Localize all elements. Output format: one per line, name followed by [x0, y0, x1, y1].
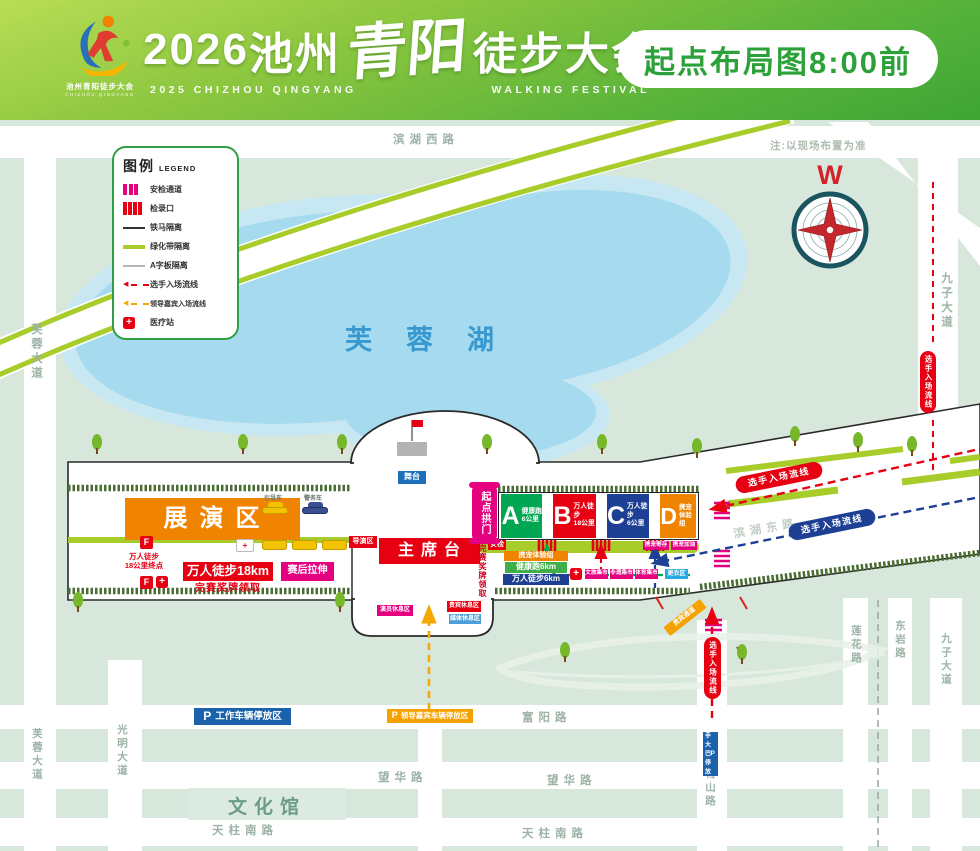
- athlete-flow-icon: ◀: [123, 281, 150, 288]
- shuttle-bus-icon-3: [322, 540, 347, 550]
- shuttle-bus-icon-2: [292, 540, 317, 550]
- compass-icon: [794, 194, 866, 266]
- logo-subtext: CHIZHOU QINGYANG: [50, 92, 150, 97]
- lake-label: 芙蓉湖: [345, 318, 528, 357]
- road-jiuzi-bottom: 九子大道: [939, 633, 954, 687]
- header-banner: 池州青阳徒步大会 CHIZHOU QINGYANG 2026 池州 青阳 徒步大…: [0, 0, 980, 120]
- runner-logo-icon: [58, 10, 142, 76]
- shuttle-bus-icon-1: [262, 540, 287, 550]
- medal-vertical-label: 完赛奖牌领取: [477, 544, 488, 608]
- road-tianzhu-right: 天柱南路: [522, 825, 588, 841]
- pet-deposit-box: 携宠寄存: [643, 541, 669, 550]
- medical-station-1: [570, 568, 582, 580]
- legend-title-en: LEGEND: [159, 164, 196, 173]
- road-tianzhu-left: 天柱南路: [212, 822, 278, 838]
- start-arch: 起点拱门: [472, 484, 497, 542]
- culture-hall-label: 文化馆: [188, 792, 346, 819]
- parking-p-icon: P: [710, 751, 717, 758]
- director-area-box: 导演区: [349, 536, 377, 548]
- start-zones: A 健康跑6公里 B 万人徒步18公里 C 万人徒步6公里 D 携宠体验组: [498, 492, 699, 540]
- parking-vip-box: P 领导嘉宾车辆停放区: [387, 709, 473, 723]
- title-year: 2026: [143, 25, 249, 75]
- map-area: 图例 LEGEND 安检通道 检录口 铁马隔离 绿化带隔离 A字板隔离: [0, 120, 980, 851]
- car-police-label: 警务车: [296, 493, 330, 502]
- pet-group-box: 携宠体验组: [504, 551, 568, 561]
- stage-platform: [397, 442, 427, 456]
- legend-item-greenbelt: 绿化带隔离: [123, 237, 229, 256]
- title-sub-left: 2025 CHIZHOU QINGYANG: [150, 84, 357, 96]
- legend-item-medical: 医疗站: [123, 313, 229, 332]
- legend-item-barrier: 铁马隔离: [123, 218, 229, 237]
- legend-item-checkin: 检录口: [123, 199, 229, 218]
- title-sub-right: WALKING FESTIVAL: [492, 84, 650, 96]
- market-2-box: 非遗集市: [610, 569, 633, 579]
- road-wanghua-right: 望华路: [547, 772, 597, 788]
- road-furong-top: 芙蓉大道: [28, 323, 44, 381]
- health-run-box: 健康跑6km: [505, 562, 567, 573]
- legend-item-athlete-flow: ◀ 选手入场流线: [123, 275, 229, 294]
- athlete-flow-pill-jishan: 选手入场流线: [704, 637, 721, 699]
- parking-work-box: P 工作车辆停放区: [194, 708, 291, 725]
- road-jiuzi-top: 九子大道: [938, 272, 954, 330]
- layout-badge: 起点布局图8:00前: [618, 30, 938, 88]
- event-title: 2026 池州 青阳 徒步大会 2025 CHIZHOU QINGYANG WA…: [150, 18, 650, 96]
- car-lead-label: 引导车: [256, 493, 290, 502]
- road-binhu-west: 滨湖西路: [393, 131, 459, 147]
- market-1-box: 文旅集市: [585, 569, 608, 579]
- legend-item-security: 安检通道: [123, 180, 229, 199]
- police-car-icon: [302, 502, 328, 514]
- road-furong-bottom: 芙蓉大道: [30, 728, 45, 782]
- zone-c: C 万人徒步6公里: [607, 494, 649, 538]
- walk6-box: 万人徒步6km: [503, 574, 569, 585]
- walk18-box: 万人徒步18km: [183, 562, 273, 581]
- parking-p-icon: P: [203, 710, 211, 723]
- road-wanghua-left: 望华路: [378, 769, 428, 785]
- event-logo: 池州青阳徒步大会 CHIZHOU QINGYANG: [50, 10, 150, 97]
- lead-car-icon: [262, 502, 288, 514]
- stretch-box: 赛后拉伸: [281, 562, 334, 581]
- vip-flow-icon: ◀: [123, 300, 150, 307]
- security-lane-icon: [123, 184, 150, 195]
- road-dongyan: 东岩路: [893, 620, 908, 661]
- site-note: 注:以现场布置为准: [770, 138, 867, 153]
- green-belt-icon: [123, 245, 150, 249]
- iron-barrier-icon: [123, 227, 150, 229]
- logo-text: 池州青阳徒步大会: [50, 81, 150, 92]
- zone-a: A 健康跑6公里: [501, 494, 542, 538]
- athlete-flow-pill-jiuzi: 选手入场流线: [920, 351, 936, 413]
- zone-d: D 携宠体验组: [660, 494, 696, 538]
- finish-point-label: 万人徒步 18公里终点: [112, 552, 176, 571]
- market-3-box: 体育集市: [635, 569, 658, 579]
- title-brand: 青阳: [345, 19, 469, 82]
- ambulance-icon: +: [236, 539, 254, 552]
- f-marker-2: F: [140, 576, 153, 589]
- title-city: 池州: [249, 18, 341, 82]
- legend-box: 图例 LEGEND 安检通道 检录口 铁马隔离 绿化带隔离 A字板隔离: [112, 146, 239, 340]
- a-board-icon: [123, 265, 150, 267]
- event-layout-poster: 池州青阳徒步大会 CHIZHOU QINGYANG 2026 池州 青阳 徒步大…: [0, 0, 980, 851]
- compass-west-label: W: [800, 160, 860, 191]
- rest-performer-box: 演员休息区: [377, 605, 413, 616]
- road-lianhua: 莲花路: [849, 625, 864, 666]
- road-guangming: 光明大道: [115, 724, 130, 778]
- road-fuyang: 富阳路: [522, 709, 572, 725]
- parking-p-icon: P: [392, 711, 398, 720]
- f-marker-1: F: [140, 536, 153, 549]
- medical-icon: [123, 317, 135, 329]
- zone-b: B 万人徒步18公里: [553, 494, 595, 538]
- legend-item-vip-flow: ◀ 领导嘉宾入场流线: [123, 294, 229, 313]
- rostrum-box: 主席台: [379, 538, 480, 564]
- stage-label-box: 舞台: [398, 471, 426, 484]
- changing-area-box: 更衣区: [665, 569, 688, 579]
- parking-bus-box: P 选手大巴停放区: [703, 732, 718, 776]
- rest-media-box: 媒体休息区: [449, 614, 481, 624]
- medical-station-2: [156, 576, 168, 588]
- rest-vip-box: 贵宾休息区: [447, 601, 481, 612]
- pet-fuel-box: 携宠加油: [671, 541, 697, 550]
- legend-title: 图例: [123, 156, 155, 176]
- checkin-gate-icon: [123, 202, 150, 215]
- legend-item-aboard: A字板隔离: [123, 256, 229, 275]
- medal-text: 完赛奖牌领取: [183, 583, 273, 596]
